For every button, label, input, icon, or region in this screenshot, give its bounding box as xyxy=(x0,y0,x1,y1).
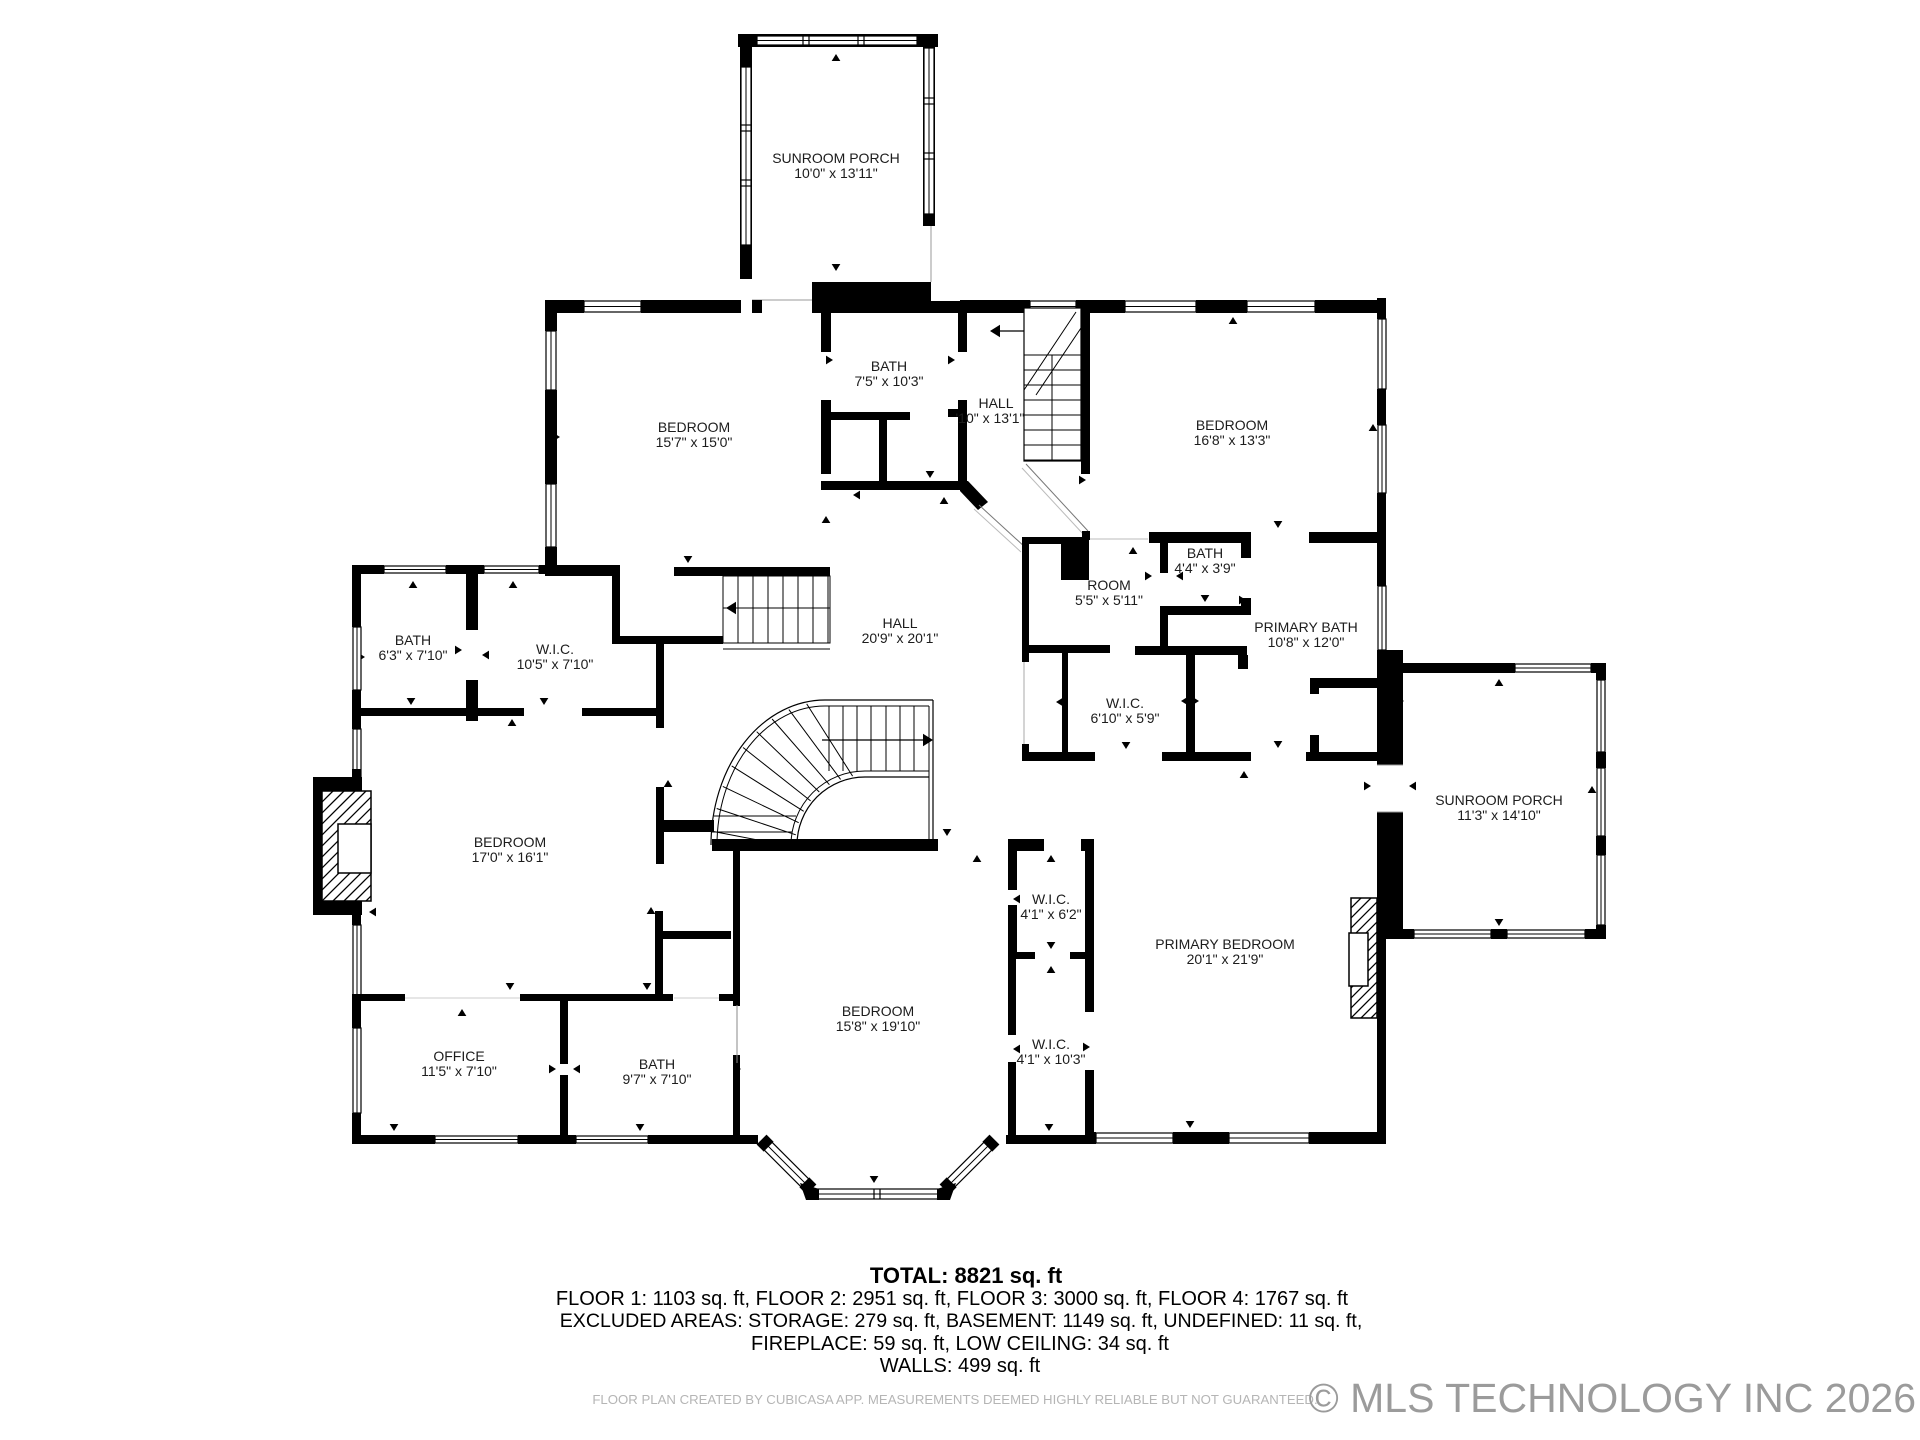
svg-text:SUNROOM PORCH: SUNROOM PORCH xyxy=(772,150,900,166)
svg-text:BEDROOM: BEDROOM xyxy=(842,1003,914,1019)
svg-text:6'3" x 7'10": 6'3" x 7'10" xyxy=(379,647,448,663)
svg-text:BEDROOM: BEDROOM xyxy=(474,834,546,850)
svg-text:WALLS: 499 sq. ft: WALLS: 499 sq. ft xyxy=(880,1355,1041,1377)
svg-text:SUNROOM PORCH: SUNROOM PORCH xyxy=(1435,792,1563,808)
svg-text:W.I.C.: W.I.C. xyxy=(1106,695,1144,711)
svg-text:17'0" x 16'1": 17'0" x 16'1" xyxy=(472,849,549,865)
svg-text:'10" x 13'1": '10" x 13'1" xyxy=(956,410,1025,426)
svg-text:© MLS TECHNOLOGY INC 2026: © MLS TECHNOLOGY INC 2026 xyxy=(1309,1375,1916,1421)
svg-text:BATH: BATH xyxy=(395,632,431,648)
svg-text:11'5" x 7'10": 11'5" x 7'10" xyxy=(421,1063,497,1079)
svg-text:5'5" x 5'11": 5'5" x 5'11" xyxy=(1075,592,1143,608)
svg-text:PRIMARY BEDROOM: PRIMARY BEDROOM xyxy=(1155,936,1295,952)
svg-text:16'8" x 13'3": 16'8" x 13'3" xyxy=(1194,432,1271,448)
svg-text:10'8" x 12'0": 10'8" x 12'0" xyxy=(1268,634,1345,650)
svg-text:11'3" x 14'10": 11'3" x 14'10" xyxy=(1457,807,1541,823)
svg-text:FIREPLACE: 59 sq. ft, LOW CEIL: FIREPLACE: 59 sq. ft, LOW CEILING: 34 sq… xyxy=(751,1333,1169,1355)
svg-text:W.I.C.: W.I.C. xyxy=(536,641,574,657)
svg-text:W.I.C.: W.I.C. xyxy=(1032,1036,1070,1052)
svg-text:4'1" x 6'2": 4'1" x 6'2" xyxy=(1020,906,1081,922)
svg-text:7'5" x 10'3": 7'5" x 10'3" xyxy=(855,373,924,389)
svg-text:BEDROOM: BEDROOM xyxy=(1196,417,1268,433)
svg-text:BATH: BATH xyxy=(871,358,907,374)
svg-text:HALL: HALL xyxy=(882,615,917,631)
svg-text:20'1" x 21'9": 20'1" x 21'9" xyxy=(1187,951,1264,967)
svg-text:W.I.C.: W.I.C. xyxy=(1032,891,1070,907)
svg-text:10'5" x 7'10": 10'5" x 7'10" xyxy=(517,656,594,672)
svg-text:FLOOR PLAN CREATED BY CUBICASA: FLOOR PLAN CREATED BY CUBICASA APP. MEAS… xyxy=(592,1392,1317,1407)
svg-text:4'4" x 3'9": 4'4" x 3'9" xyxy=(1174,560,1235,576)
svg-text:BATH: BATH xyxy=(1187,545,1223,561)
svg-text:6'10" x 5'9": 6'10" x 5'9" xyxy=(1091,710,1160,726)
svg-text:PRIMARY BATH: PRIMARY BATH xyxy=(1254,619,1357,635)
svg-text:EXCLUDED AREAS: STORAGE: 279 s: EXCLUDED AREAS: STORAGE: 279 sq. ft, BAS… xyxy=(560,1310,1363,1332)
svg-text:FLOOR 1: 1103 sq. ft, FLOOR 2:: FLOOR 1: 1103 sq. ft, FLOOR 2: 2951 sq. … xyxy=(556,1288,1349,1310)
svg-text:BATH: BATH xyxy=(639,1056,675,1072)
svg-text:9'7" x 7'10": 9'7" x 7'10" xyxy=(623,1071,692,1087)
svg-text:15'7" x 15'0": 15'7" x 15'0" xyxy=(656,434,733,450)
svg-text:ROOM: ROOM xyxy=(1087,577,1131,593)
svg-text:10'0" x 13'11": 10'0" x 13'11" xyxy=(794,165,878,181)
svg-text:4'1" x 10'3": 4'1" x 10'3" xyxy=(1017,1051,1086,1067)
svg-text:TOTAL: 8821 sq. ft: TOTAL: 8821 sq. ft xyxy=(870,1263,1063,1288)
svg-text:HALL: HALL xyxy=(978,395,1013,411)
svg-text:20'9" x 20'1": 20'9" x 20'1" xyxy=(862,630,939,646)
svg-text:BEDROOM: BEDROOM xyxy=(658,419,730,435)
svg-text:15'8" x 19'10": 15'8" x 19'10" xyxy=(836,1018,921,1034)
svg-text:OFFICE: OFFICE xyxy=(433,1048,484,1064)
